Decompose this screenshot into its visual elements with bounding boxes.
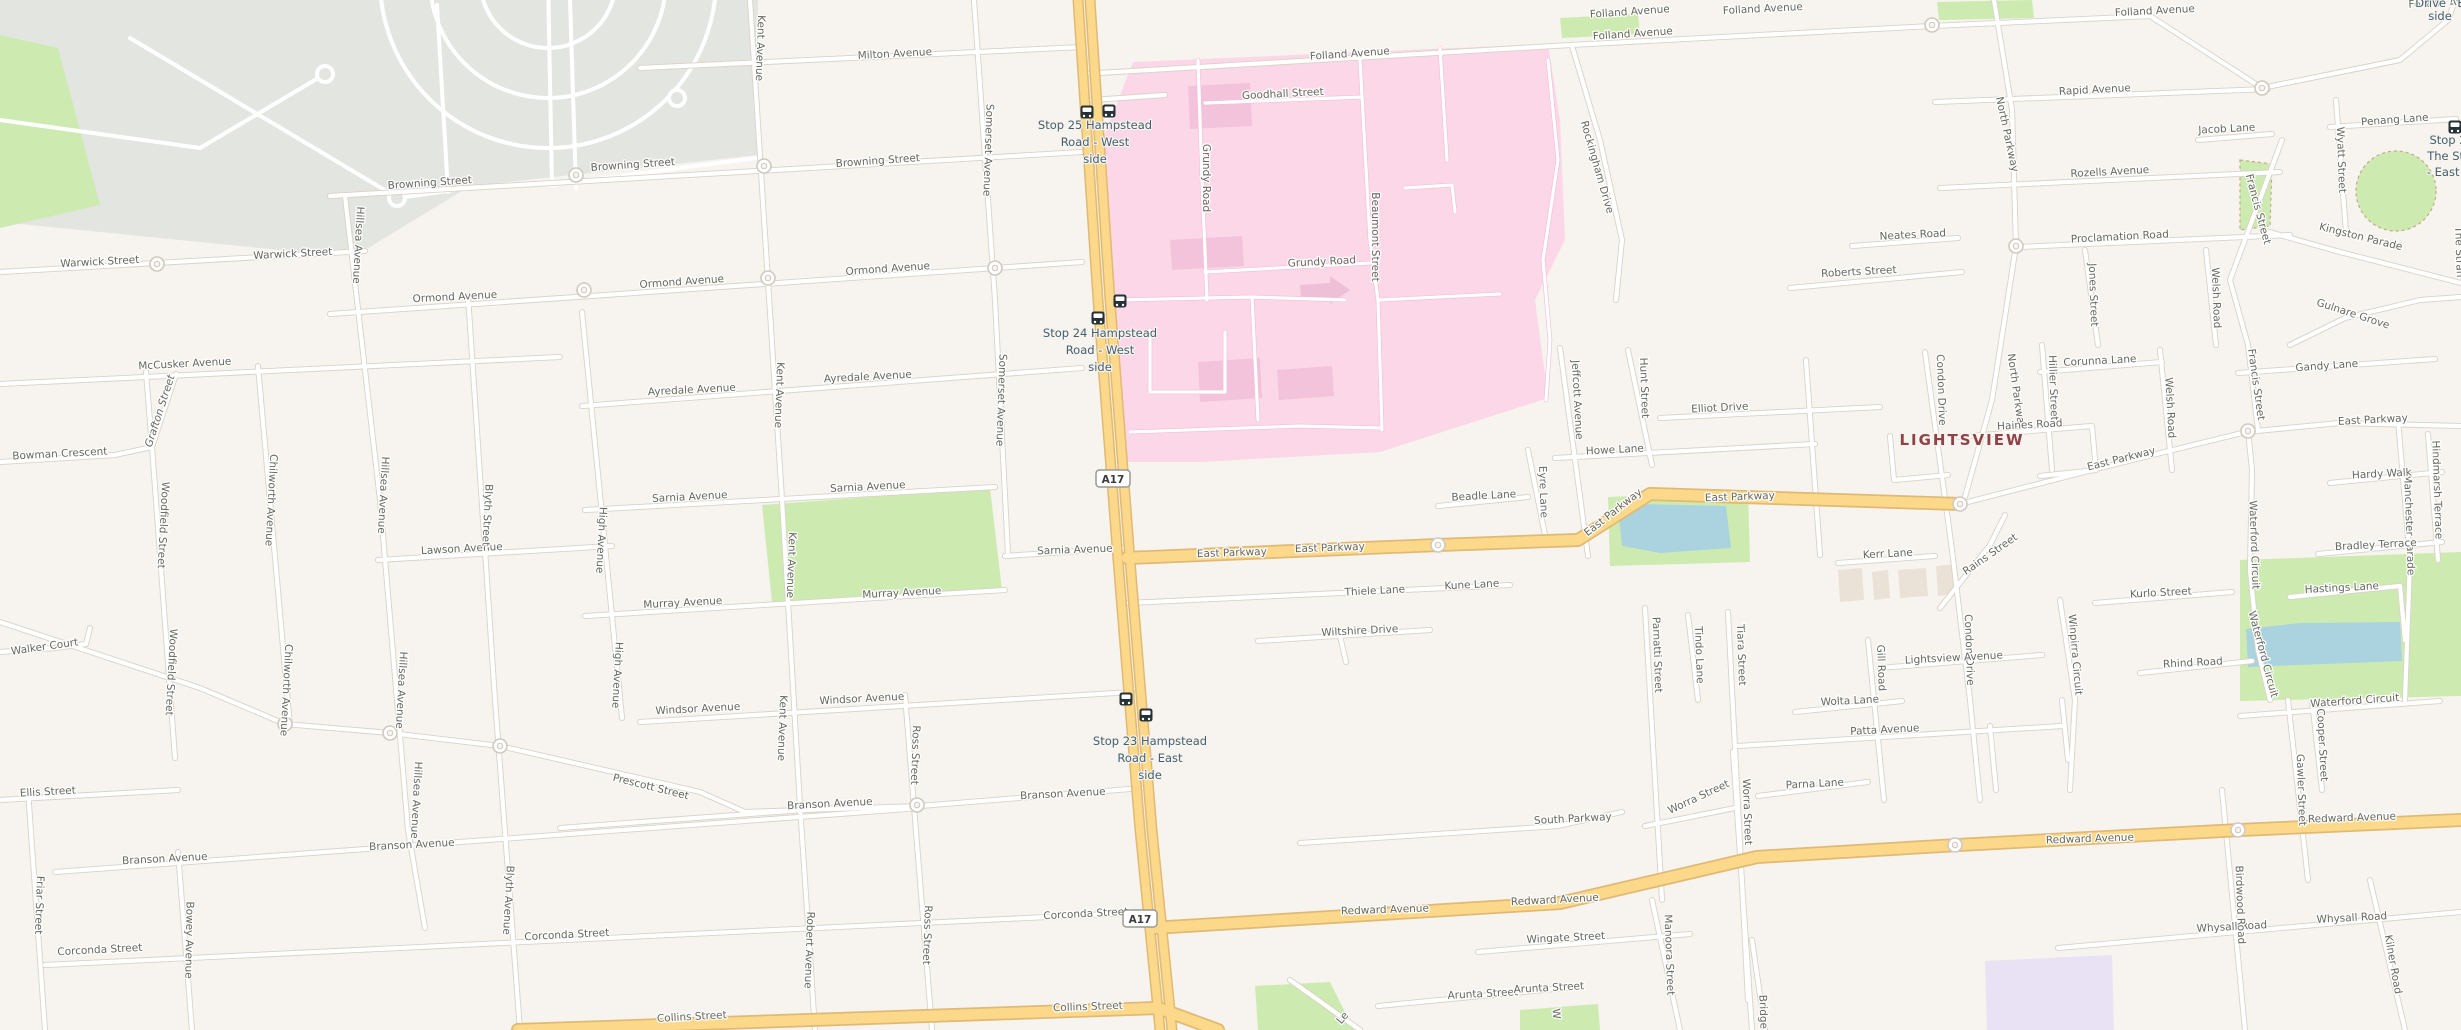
roundabout-island-11 [1957,501,1963,507]
label-worra-street-123: Worra Street [1740,779,1754,846]
bus-icon-window-stop-ne-0 [2451,123,2460,128]
road-casing-folland-avenue-e [2262,0,2455,88]
label-kilner-road-140: Kilner Road [2382,934,2404,995]
bus-stop-label-stop-ne-line-1: The Str [2426,149,2461,163]
bus-stop-label-stop-25-line-2: side [1083,152,1107,166]
bus-icon-wheel-l-stop-23-1 [1142,718,1144,720]
bus-stop-label-stop-24-line-1: Road - West [1066,343,1135,357]
label-grundy-road-64: Grundy Road [1200,144,1212,212]
roundabout-island-7 [387,730,393,736]
label-tiara-street-147: Tiara Street [1734,623,1748,686]
label-parna-lane-120: Parna Lane [1785,776,1844,791]
park-node-1 [669,90,685,106]
bus-icon-wheel-r-stop-23-0 [1128,702,1130,704]
bus-icon-wheel-r-stop-25-0 [1089,115,1091,117]
roundabout-island-2 [761,163,767,169]
label-arunta-street-129: Arunta Street [1447,986,1518,1002]
bus-stop-label-stop-ne-line-2: - East s [2427,165,2461,179]
label-corconda-street-31: Corconda Street [1043,906,1129,922]
label-cooper-street-135: Cooper Street [2314,708,2330,781]
bus-icon-wheel-l-stop-24-0 [1116,304,1118,306]
roundabout-island-13 [1929,22,1935,28]
label-prescott-street-24: Prescott Street [612,772,690,802]
label-tindo-lane-146: Tindo Lane [1692,625,1706,684]
roundabout-island-0 [154,261,160,267]
bus-stop-label-stop-tr-line-1: side [2428,9,2452,23]
bus-icon-window-stop-23-0 [1122,695,1131,700]
label-kune-lane-110: Kune Lane [1444,578,1499,593]
label-bowey-avenue-35: Bowey Avenue [182,901,195,978]
roundabout-island-9 [914,802,920,808]
map-svg[interactable]: Milton AvenueBrowning StreetBrowning Str… [0,0,2461,1030]
label-redward-avenue-126: Redward Avenue [2046,831,2134,846]
label-hindmarsh-terrace-88: Hindmarsh Terrace [2429,440,2444,539]
bus-icon-wheel-r-stop-23-1 [1148,718,1150,720]
area-bldg-kerr-3 [1898,568,1928,598]
bus-stop-label-stop-ne-line-0: Stop 2 [2429,133,2461,147]
label-collins-street-33: Collins Street [1053,1000,1123,1014]
label-branson-avenue-25: Branson Avenue [122,851,208,867]
roundabout-island-16 [1952,842,1958,848]
road-wiltshire-stub [1340,636,1346,662]
label-gill-road-144: Gill Road [1874,644,1888,691]
bus-stop-label-stop-23-line-0: Stop 23 Hampstead [1093,734,1207,748]
place-label-lightsview: LIGHTSVIEW [1899,431,2024,449]
area-bldg-pink-4 [1277,366,1334,400]
label-wiltshire-drive-111: Wiltshire Drive [1321,623,1399,639]
bus-stop-label-stop-23-line-2: side [1138,768,1162,782]
area-bldg-kerr-1 [1838,568,1864,602]
road-howe-east-vert [1806,360,1820,555]
label-corconda-street-29: Corconda Street [57,942,143,958]
area-green-folland-2 [1937,0,2034,20]
route-badge-label-1: A17 [1129,914,1152,926]
park-node-0 [317,66,333,82]
label-folland-avenue-61: Folland Avenue [2115,3,2196,19]
roundabout-island-4 [581,287,587,293]
label-ross-street-54: Ross Street [920,905,934,965]
label-whysall-road-133: Whysall Road [2316,910,2387,926]
label-kent-avenue-49: Kent Avenue [772,362,786,428]
bus-icon-wheel-r-stop-ne-0 [2457,130,2459,132]
label-bowman-crescent-20: Bowman Crescent [12,446,108,463]
bus-stop-label-stop-24-line-2: side [1088,360,1112,374]
label-mccusker-avenue-6: McCusker Avenue [138,356,232,373]
road-east-parkway-east [1960,423,2461,504]
label-gandy-lane-86: Gandy Lane [2295,358,2359,374]
label-friar-street-34: Friar Street [32,876,46,935]
label-east-parkway-93: East Parkway [1197,546,1267,560]
area-pink-institution [1095,44,1565,462]
label-w-143: W [1550,1008,1563,1020]
label-south-parkway-121: South Parkway [1534,811,1612,827]
bus-stop-label-stop-24-line-0: Stop 24 Hampstead [1043,326,1157,340]
label-browning-street-3: Browning Street [835,152,920,170]
bus-icon-wheel-l-stop-25-0 [1083,115,1085,117]
label-robert-avenue-52: Robert Avenue [802,911,817,989]
map-canvas[interactable]: Milton AvenueBrowning StreetBrowning Str… [0,0,2461,1030]
roundabout-island-15 [2013,243,2019,249]
label-kent-avenue-48: Kent Avenue [753,15,767,81]
bus-icon-window-stop-25-1 [1105,107,1114,112]
bus-icon-wheel-l-stop-ne-0 [2451,130,2453,132]
area-bldg-kerr-2 [1872,570,1890,600]
label-east-parkway-96: East Parkway [1705,490,1775,504]
label-francis-street-80: Francis Street [2245,348,2267,421]
label-kent-avenue-50: Kent Avenue [784,532,798,598]
roundabout-island-17 [2235,827,2241,833]
label-condon-drive-106: Condon Drive [1962,614,1976,686]
label-north-parkway-68: North Parkway [1993,96,2021,173]
label-branson-avenue-28: Branson Avenue [1020,786,1106,802]
label-beaumont-street-66: Beaumont Street [1369,192,1381,281]
roundabout-island-10 [1435,542,1441,548]
label-hunt-street-103: Hunt Street [1637,357,1651,418]
bus-stop-label-stop-23-line-1: Road - East [1117,751,1183,765]
area-bldg-pink-3 [1198,358,1262,402]
bus-stop-label-stop-25-line-1: Road - West [1061,135,1130,149]
roundabout-island-5 [992,265,998,271]
road-ormond-avenue [330,262,1082,314]
label-the-stran-85: The Stran [2452,225,2461,277]
label-east-parkway-94: East Parkway [1295,541,1365,555]
label-hillier-street-107: Hillier Street [2046,355,2060,421]
bus-icon-wheel-l-stop-23-0 [1122,702,1124,704]
label-welsh-road-77: Welsh Road [2209,267,2223,328]
bus-icon-window-stop-24-1 [1094,314,1103,319]
road-patta-stub-1 [1990,726,1996,790]
roundabout-island-8 [497,743,503,749]
bus-icon-wheel-l-stop-24-1 [1094,321,1096,323]
label-eyre-lane-101: Eyre Lane [1536,466,1550,519]
label-high-avenue-46: High Avenue [593,507,608,574]
bus-icon-window-stop-23-1 [1142,711,1151,716]
label-wyatt-street-81: Wyatt Street [2334,127,2348,194]
bus-icon-window-stop-24-0 [1116,297,1125,302]
label-lightsview-avenue-116: Lightsview Avenue [1904,649,2003,666]
road-casing-east-parkway-east [1960,423,2461,504]
label-welsh-road-78: Welsh Road [2162,377,2177,439]
route-badge-label-0: A17 [1102,474,1125,486]
bus-icon-wheel-r-stop-24-1 [1100,321,1102,323]
label-hillsea-avenue-43: Hillsea Avenue [408,761,424,839]
label-condon-drive-105: Condon Drive [1934,354,1948,426]
area-purple-area [1985,955,2114,1030]
label-redward-avenue-125: Redward Avenue [1511,892,1600,909]
bus-icon-wheel-r-stop-25-1 [1111,114,1113,116]
label-bridge-141: Bridge [1756,995,1769,1030]
area-park-jacob-east [2356,151,2436,231]
label-ross-street-53: Ross Street [908,725,922,785]
roundabout-island-12 [2245,428,2251,434]
bus-icon-wheel-l-stop-25-1 [1105,114,1107,116]
area-gray-park [0,0,758,252]
label-manoora-street-128: Manoora Street [1662,914,1677,995]
label-milton-avenue-0: Milton Avenue [857,46,932,62]
label-sarnia-avenue-14: Sarnia Avenue [1037,543,1113,558]
label-branson-avenue-26: Branson Avenue [369,837,455,853]
label-jones-street-76: Jones Street [2086,262,2100,327]
label-penang-lane-82: Penang Lane [2361,112,2429,129]
roundabout-island-1 [573,172,579,178]
label-high-avenue-47: High Avenue [609,642,624,709]
roundabout-island-14 [2259,85,2265,91]
bus-icon-window-stop-25-0 [1083,108,1092,113]
bus-stop-label-stop-25-line-0: Stop 25 Hampstead [1038,118,1152,132]
label-folland-avenue-60: Folland Avenue [1723,1,1804,17]
label-thiele-lane-109: Thiele Lane [1343,583,1405,598]
road-patta-stub-2 [2062,700,2068,760]
roundabout-island-3 [765,275,771,281]
label-blyth-avenue-45: Blyth Avenue [500,865,516,935]
bus-icon-wheel-r-stop-24-0 [1122,304,1124,306]
label-gawler-street-134: Gawler Street [2294,754,2309,826]
label-kent-avenue-51: Kent Avenue [775,695,789,761]
label-rhind-road-117: Rhind Road [2163,655,2223,670]
road-folland-avenue-e [2262,0,2455,88]
label-arunta-street-130: Arunta Street [1513,980,1584,996]
